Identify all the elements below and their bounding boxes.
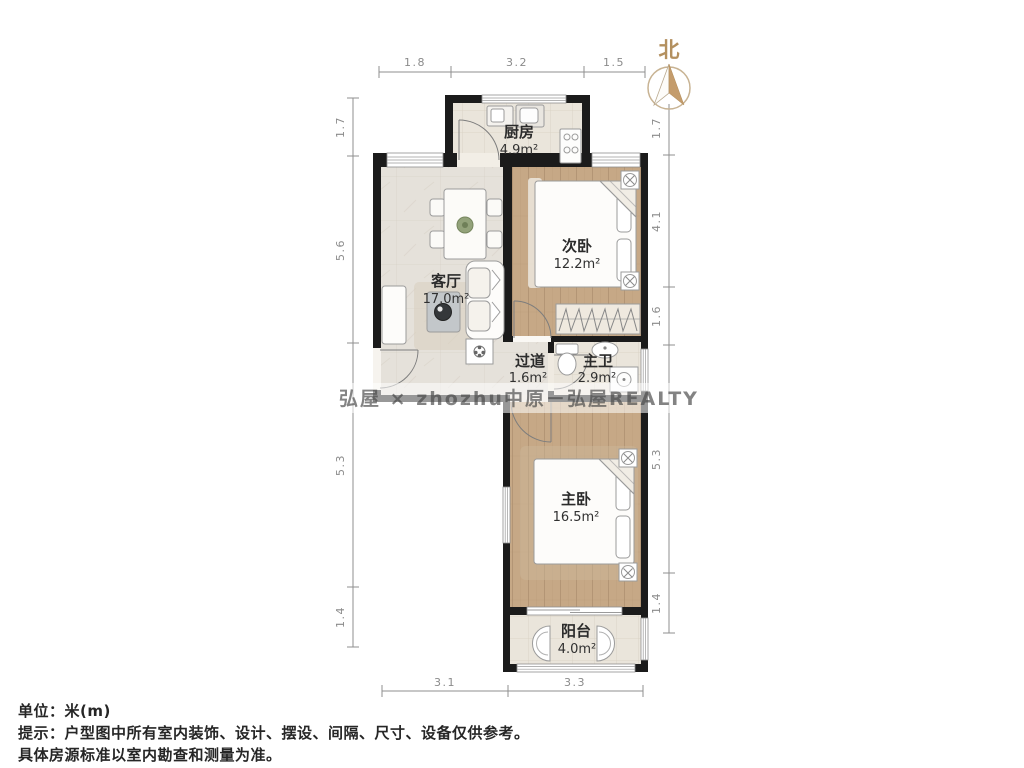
dim-label: 4.1 <box>650 210 663 232</box>
dim-label: 3.1 <box>434 676 456 689</box>
nightstand-icon <box>619 563 637 581</box>
room-label-kitchen: 厨房 <box>504 123 534 141</box>
balcony-window-icon <box>517 664 635 672</box>
watermark: 弘屋 × zhozhu中原－弘屋REALTY <box>339 383 699 413</box>
footer-note-line1: 提示：户型图中所有室内装饰、设计、摆设、间隔、尺寸、设备仅供参考。 <box>18 722 530 743</box>
room-area-living: 17.0m² <box>423 292 470 307</box>
sofa-icon <box>466 261 504 339</box>
room-label-bedroom2: 次卧 <box>562 237 592 255</box>
wardrobe-icon <box>556 304 640 334</box>
ac-unit-icon <box>621 272 639 290</box>
floor-plan-svg: 1.8 3.2 1.5 1.7 5.6 5.3 1.4 1.7 4.1 1.6 … <box>0 0 1024 768</box>
dim-label: 1.7 <box>650 117 663 139</box>
kitchen-window-icon <box>482 95 566 103</box>
room-area-hallway: 1.6m² <box>509 371 548 386</box>
toilet-icon <box>556 344 578 375</box>
dim-label: 5.3 <box>334 454 347 476</box>
room-label-bedroom1: 主卧 <box>561 490 591 508</box>
bedroom2-window-icon <box>592 153 640 167</box>
room-area-bathroom: 2.9m² <box>578 371 617 386</box>
footer-note-line2: 具体房源标准以室内勘查和测量为准。 <box>18 744 282 765</box>
room-area-kitchen: 4.9m² <box>500 143 539 158</box>
dim-label: 5.3 <box>650 448 663 470</box>
room-area-bedroom2: 12.2m² <box>554 257 601 272</box>
dim-label: 1.8 <box>404 56 426 69</box>
watermark-text: 弘屋 × zhozhu中原－弘屋REALTY <box>339 387 699 410</box>
bedroom1-window-icon <box>503 487 510 543</box>
dim-label: 3.3 <box>564 676 586 689</box>
compass-icon <box>648 64 690 109</box>
north-label: 北 <box>659 38 680 62</box>
balcony-door-icon <box>527 607 622 615</box>
balcony-side-window-icon <box>641 618 648 660</box>
nightstand-icon <box>619 449 637 467</box>
dim-label: 1.7 <box>334 116 347 138</box>
floorplan-canvas: 1.8 3.2 1.5 1.7 5.6 5.3 1.4 1.7 4.1 1.6 … <box>0 0 1024 768</box>
room-area-bedroom1: 16.5m² <box>553 510 600 525</box>
ac-unit-icon <box>621 171 639 189</box>
north-compass: 北 <box>648 38 690 109</box>
flower-table-icon <box>466 339 493 364</box>
room-label-hallway: 过道 <box>515 352 545 370</box>
living-window-icon <box>387 153 443 167</box>
tv-stand-icon <box>382 286 406 344</box>
dim-label: 5.6 <box>334 239 347 261</box>
room-label-balcony: 阳台 <box>561 622 591 640</box>
footer-unit-line: 单位：米(m) <box>18 700 111 721</box>
room-label-bathroom: 主卫 <box>583 352 613 370</box>
dim-label: 1.5 <box>603 56 625 69</box>
stove-icon <box>560 129 581 163</box>
dim-label: 1.4 <box>334 606 347 628</box>
dim-label: 3.2 <box>506 56 528 69</box>
dim-label: 1.6 <box>650 305 663 327</box>
room-label-living: 客厅 <box>430 272 461 290</box>
room-area-balcony: 4.0m² <box>558 642 597 657</box>
dim-label: 1.4 <box>650 592 663 614</box>
